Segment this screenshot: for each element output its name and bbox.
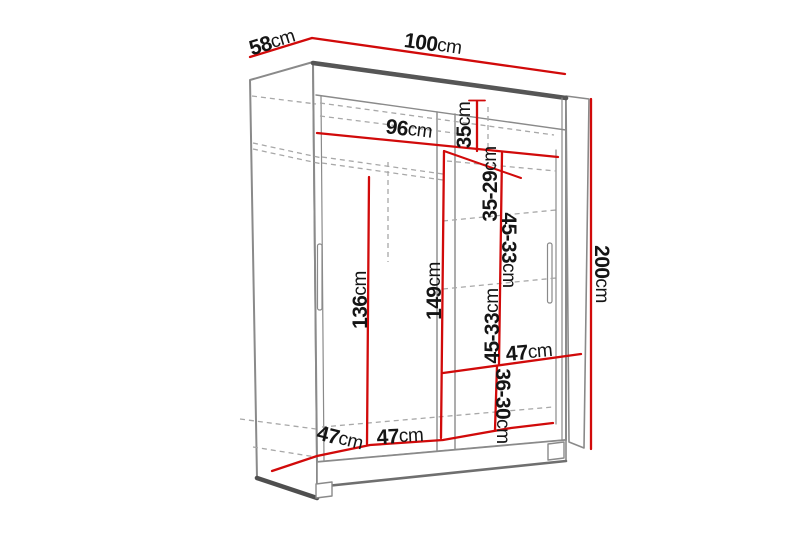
dim-label-top-depth: 58cm — [246, 24, 297, 60]
foot-left — [316, 482, 332, 498]
front-face — [313, 62, 566, 462]
dim-label-top-width: 100cm — [403, 29, 463, 60]
dim-label-upper-shelf-gap: 35-29cm — [479, 146, 502, 221]
foot-right — [548, 442, 564, 460]
dim-label-hanging-space-height: 136cm — [349, 271, 372, 329]
dim-label-bottom-shelf-gap: 36-30cm — [492, 368, 515, 443]
wardrobe-diagram: 58cm 100cm 96cm 35cm 35-29cm 45-33cm 45-… — [0, 0, 800, 533]
product-dimension-image: 58cm 100cm 96cm 35cm 35-29cm 45-33cm 45-… — [0, 0, 800, 533]
dim-label-middle-shelf-gap: 45-33cm — [498, 212, 521, 287]
left-side-panel — [250, 62, 317, 498]
dim-label-interior-height: 149cm — [423, 262, 446, 320]
dim-label-total-height: 200cm — [591, 245, 614, 303]
door-handle-right — [548, 243, 553, 303]
dim-label-left-compartment-width: 47cm — [376, 423, 424, 448]
door-handle-left — [318, 244, 323, 310]
right-side-edge — [566, 96, 589, 448]
dim-label-top-shelf-height: 35cm — [453, 102, 476, 149]
dim-label-lower-shelf-gap: 45-33cm — [481, 288, 504, 363]
